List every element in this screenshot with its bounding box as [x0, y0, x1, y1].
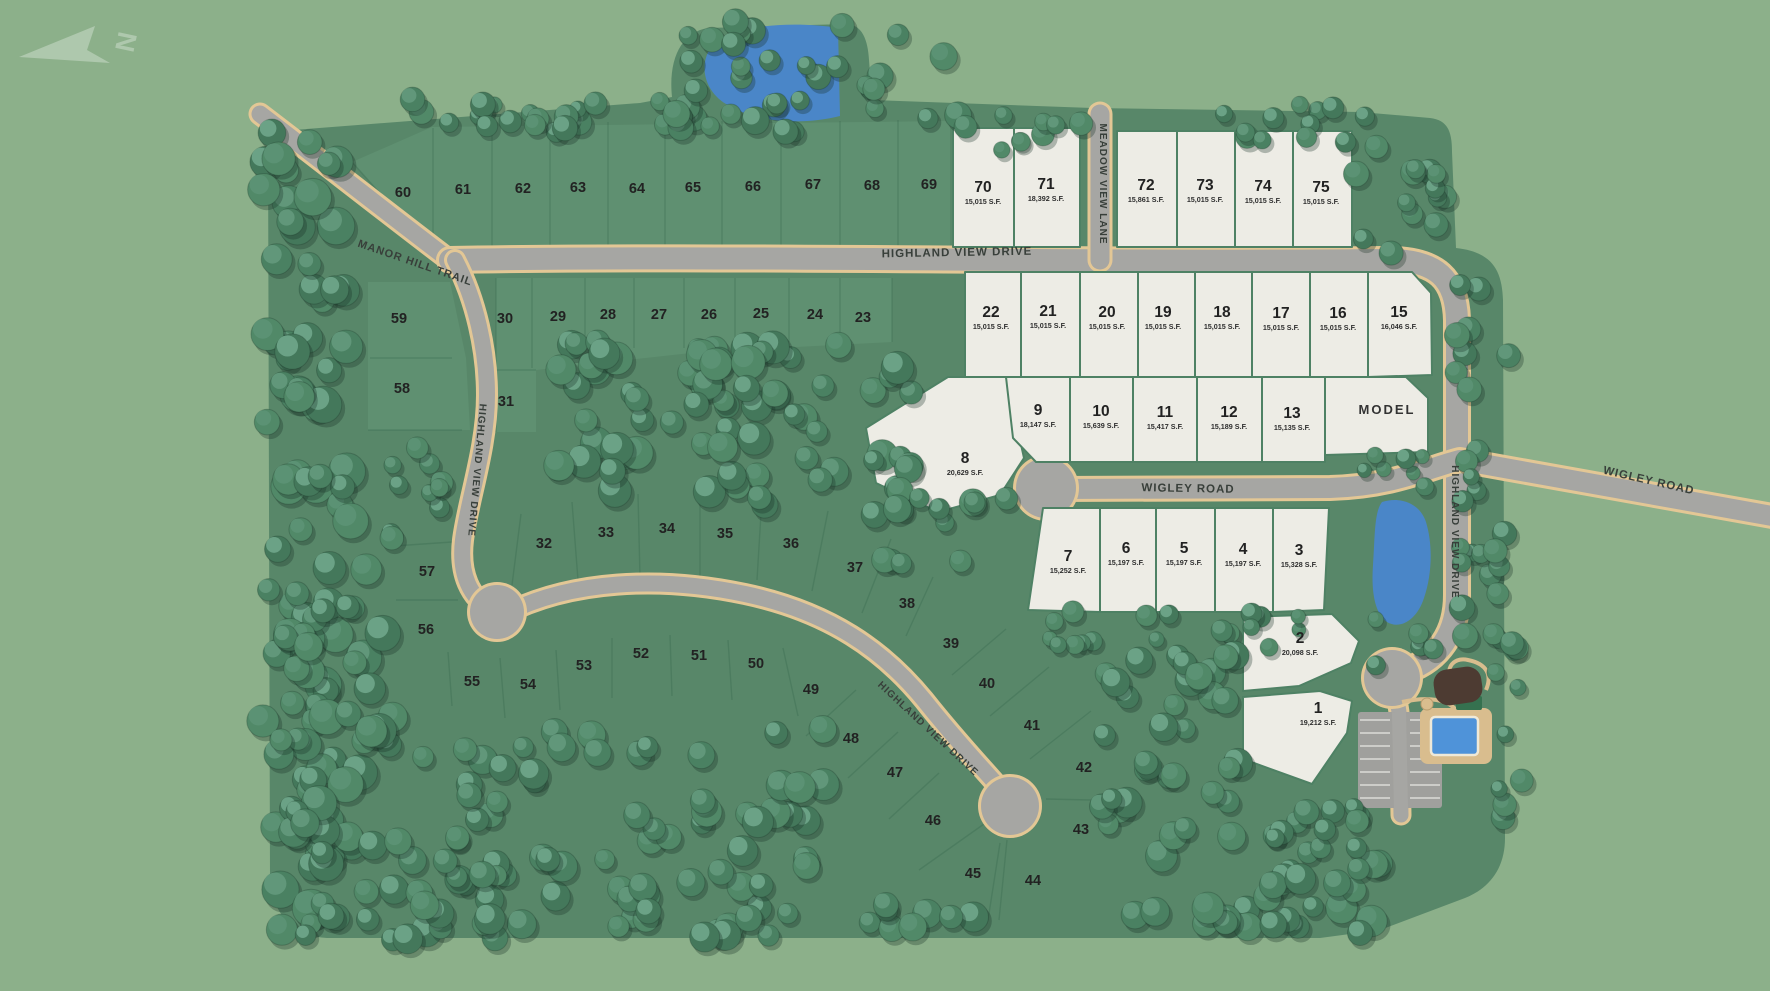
tree-highlight	[1345, 162, 1360, 177]
lot-63-label[interactable]: 63	[570, 180, 586, 196]
lot-10-sqft: 15,639 S.F.	[1083, 421, 1119, 430]
lot-33-label[interactable]: 33	[598, 525, 614, 541]
lot-23-label[interactable]: 23	[855, 310, 871, 326]
lot-75-sqft: 15,015 S.F.	[1303, 197, 1339, 206]
tree-highlight	[299, 253, 313, 267]
tree-highlight	[1254, 132, 1265, 143]
tree-highlight	[440, 114, 452, 126]
lot-74-sqft: 15,015 S.F.	[1245, 196, 1281, 205]
tree-highlight	[357, 717, 376, 736]
lot-59-number: 59	[391, 311, 407, 327]
lot-66-label[interactable]: 66	[745, 179, 761, 195]
tree-highlight	[435, 850, 449, 864]
tree-highlight	[471, 862, 487, 878]
tree-highlight	[331, 331, 351, 351]
tree-highlight	[360, 832, 377, 849]
tree-highlight	[729, 837, 747, 855]
lot-24-label[interactable]: 24	[807, 307, 823, 323]
tree-highlight	[543, 720, 559, 736]
lot-36-label[interactable]: 36	[783, 536, 799, 552]
tree-highlight	[1494, 522, 1509, 537]
tree-highlight	[739, 423, 759, 443]
lot-41-number: 41	[1024, 718, 1040, 734]
lot-22-sqft: 15,015 S.F.	[973, 322, 1009, 331]
lot-60-number: 60	[395, 185, 411, 201]
lot-73-sqft: 15,015 S.F.	[1187, 195, 1223, 204]
tree-highlight	[807, 422, 820, 435]
tree-highlight	[1213, 688, 1229, 704]
lot-74-number: 74	[1254, 178, 1272, 195]
lot-43-label[interactable]: 43	[1073, 822, 1089, 838]
tree-highlight	[296, 633, 313, 650]
tree-highlight	[735, 376, 751, 392]
tree-highlight	[1488, 664, 1499, 675]
tree-highlight	[447, 827, 461, 841]
tree-highlight	[1036, 114, 1047, 125]
lot-41-label[interactable]: 41	[1024, 718, 1040, 734]
tree-highlight	[546, 452, 564, 470]
lot-56-label[interactable]: 56	[418, 622, 434, 638]
lot-55-label[interactable]: 55	[464, 674, 480, 690]
lot-35-label[interactable]: 35	[717, 526, 733, 542]
lot-62-number: 62	[515, 181, 531, 197]
tree-highlight	[312, 600, 327, 615]
tree-highlight	[318, 359, 333, 374]
tree-highlight	[296, 180, 318, 202]
lot-46-number: 46	[925, 813, 941, 829]
lot-7-sqft: 15,252 S.F.	[1050, 566, 1086, 575]
lot-64-label[interactable]: 64	[629, 181, 645, 197]
lot-61-number: 61	[455, 182, 471, 198]
tree-highlight	[1292, 610, 1301, 619]
lot-67-number: 67	[805, 177, 821, 193]
tree-highlight	[744, 808, 763, 827]
tree-highlight	[996, 107, 1007, 118]
tree-highlight	[1366, 136, 1380, 150]
cul-de-sac[interactable]	[981, 777, 1039, 835]
tree-highlight	[1356, 108, 1368, 120]
lot-44-number: 44	[1025, 873, 1041, 889]
lot-49-number: 49	[803, 682, 819, 698]
lot-51-label[interactable]: 51	[691, 648, 707, 664]
tree-highlight	[1160, 606, 1172, 618]
tree-highlight	[685, 393, 700, 408]
tree-highlight	[455, 739, 469, 753]
lot-31-number: 31	[498, 394, 514, 410]
tree-highlight	[692, 790, 707, 805]
tree-highlight	[1512, 770, 1526, 784]
tree-highlight	[1323, 98, 1336, 111]
lot-8-sqft: 20,629 S.F.	[947, 468, 983, 477]
tree-highlight	[1103, 669, 1120, 686]
tree-highlight	[315, 553, 335, 573]
lot-51-number: 51	[691, 648, 707, 664]
tree-highlight	[965, 493, 978, 506]
lot-62-label[interactable]: 62	[515, 181, 531, 197]
tree-highlight	[609, 917, 622, 930]
tree-highlight	[626, 388, 641, 403]
lot-71-sqft: 18,392 S.F.	[1028, 194, 1064, 203]
lot-28-label[interactable]: 28	[600, 307, 616, 323]
tree-highlight	[596, 850, 608, 862]
tree-highlight	[1417, 478, 1428, 489]
lot-72-sqft: 15,861 S.F.	[1128, 195, 1164, 204]
tree-highlight	[1397, 450, 1409, 462]
tree-highlight	[1425, 640, 1437, 652]
lot-65-number: 65	[685, 180, 701, 196]
tree-highlight	[585, 740, 601, 756]
tree-highlight	[1428, 165, 1439, 176]
tree-highlight	[743, 108, 760, 125]
tree-highlight	[1123, 902, 1140, 919]
lot-69-label[interactable]: 69	[921, 177, 937, 193]
tree-highlight	[911, 489, 923, 501]
tree-highlight	[250, 175, 269, 194]
tree-highlight	[792, 92, 803, 103]
lot-27-number: 27	[651, 307, 667, 323]
tree-highlight	[1292, 97, 1302, 107]
tree-highlight	[1348, 839, 1360, 851]
lot-19-sqft: 15,015 S.F.	[1145, 322, 1181, 331]
tree-highlight	[1287, 865, 1306, 884]
tree-highlight	[431, 479, 442, 490]
lot-21-number: 21	[1039, 303, 1057, 320]
lot-53-label[interactable]: 53	[576, 658, 592, 674]
tree-highlight	[1458, 378, 1473, 393]
lot-4-number: 4	[1239, 541, 1248, 558]
tree-highlight	[932, 44, 949, 61]
tree-highlight	[1043, 632, 1052, 641]
tree-highlight	[1368, 448, 1378, 458]
tree-highlight	[901, 914, 918, 931]
lot-45-number: 45	[965, 866, 981, 882]
lot-48-number: 48	[843, 731, 859, 747]
tree-highlight	[278, 209, 294, 225]
lot-69-number: 69	[921, 177, 937, 193]
lot-36-number: 36	[783, 536, 799, 552]
lot-18-sqft: 15,015 S.F.	[1204, 322, 1240, 331]
tree-highlight	[1051, 637, 1061, 647]
tree-highlight	[1187, 664, 1203, 680]
tree-highlight	[1216, 106, 1226, 116]
tree-highlight	[1407, 160, 1418, 171]
lot-33-number: 33	[598, 525, 614, 541]
lot-68-number: 68	[864, 178, 880, 194]
lot-61-label[interactable]: 61	[455, 182, 471, 198]
lot-37-label[interactable]: 37	[847, 560, 863, 576]
tree-highlight	[896, 456, 913, 473]
tree-highlight	[1267, 829, 1278, 840]
tree-highlight	[264, 143, 284, 163]
tree-highlight	[768, 94, 781, 107]
lot-20-sqft: 15,015 S.F.	[1089, 322, 1125, 331]
tree-highlight	[693, 433, 707, 447]
tree-highlight	[285, 657, 300, 672]
lot-44-label[interactable]: 44	[1025, 873, 1041, 889]
tree-highlight	[566, 333, 580, 347]
tree-highlight	[709, 433, 727, 451]
tree-highlight	[381, 876, 399, 894]
tree-highlight	[268, 915, 287, 934]
tree-highlight	[353, 555, 372, 574]
tree-highlight	[277, 335, 298, 356]
tree-highlight	[271, 730, 284, 743]
tree-highlight	[385, 457, 395, 467]
tree-highlight	[813, 376, 826, 389]
tree-highlight	[296, 926, 308, 938]
lot-60-label[interactable]: 60	[395, 185, 411, 201]
tree-highlight	[994, 142, 1004, 152]
lot-47-label[interactable]: 47	[887, 765, 903, 781]
tree-highlight	[520, 760, 538, 778]
tree-highlight	[591, 339, 610, 358]
road-label-meadow-view-lane: MEADOW VIEW LANE	[1097, 124, 1108, 245]
tree-highlight	[737, 906, 753, 922]
tree-highlight	[1212, 621, 1225, 634]
tree-highlight	[1446, 324, 1461, 339]
lot-12-number: 12	[1220, 404, 1237, 421]
lot-58-label[interactable]: 58	[394, 381, 410, 397]
tree-highlight	[811, 717, 828, 734]
tree-highlight	[863, 503, 879, 519]
tree-highlight	[260, 120, 277, 137]
tree-highlight	[1457, 451, 1470, 464]
lot-29-label[interactable]: 29	[550, 309, 566, 325]
tree-highlight	[766, 722, 780, 736]
lot-48-label[interactable]: 48	[843, 731, 859, 747]
lot-68-label[interactable]: 68	[864, 178, 880, 194]
lot-1-sqft: 19,212 S.F.	[1300, 718, 1336, 727]
tree-highlight	[717, 418, 731, 432]
lot-63-number: 63	[570, 180, 586, 196]
tree-highlight	[865, 451, 877, 463]
lot-71-number: 71	[1037, 176, 1055, 193]
lot-59-label[interactable]: 59	[391, 311, 407, 327]
tree-highlight	[367, 617, 388, 638]
tree-highlight	[1349, 921, 1364, 936]
lot-29-number: 29	[550, 309, 566, 325]
lot-26-label[interactable]: 26	[701, 307, 717, 323]
tree-highlight	[1063, 602, 1076, 615]
lot-50-number: 50	[748, 656, 764, 672]
tree-highlight	[724, 10, 740, 26]
tree-highlight	[386, 829, 402, 845]
lot-16-sqft: 15,015 S.F.	[1320, 323, 1356, 332]
tree-highlight	[955, 116, 969, 130]
tree-highlight	[1304, 897, 1316, 909]
tree-highlight	[1297, 128, 1309, 140]
lot-12-sqft: 15,189 S.F.	[1211, 422, 1247, 431]
tree-highlight	[652, 93, 663, 104]
lot-25-label[interactable]: 25	[753, 306, 769, 322]
lot-30-label[interactable]: 30	[497, 311, 513, 327]
tree-highlight	[689, 743, 705, 759]
tree-highlight	[1369, 612, 1378, 621]
tree-highlight	[286, 383, 304, 401]
tree-highlight	[310, 465, 324, 479]
tree-highlight	[1136, 752, 1150, 766]
lot-57-label[interactable]: 57	[419, 564, 435, 580]
tree-highlight	[723, 33, 737, 47]
tree-highlight	[458, 784, 473, 799]
lot-46-label[interactable]: 46	[925, 813, 941, 829]
lot-42-number: 42	[1076, 760, 1092, 776]
lot-18-number: 18	[1213, 304, 1231, 321]
tree-highlight	[1502, 633, 1516, 647]
tree-highlight	[395, 925, 413, 943]
tree-highlight	[763, 381, 779, 397]
tree-highlight	[1315, 820, 1328, 833]
lot-26-number: 26	[701, 307, 717, 323]
model-home-label: MODEL	[1359, 402, 1416, 417]
lot-57-number: 57	[419, 564, 435, 580]
tree-highlight	[488, 792, 501, 805]
tree-highlight	[335, 505, 356, 526]
tree-highlight	[637, 899, 652, 914]
tree-highlight	[478, 116, 491, 129]
lot-16-number: 16	[1329, 305, 1347, 322]
tree-highlight	[695, 477, 714, 496]
road-label-wigley-road: WIGLEY ROAD	[1141, 482, 1234, 496]
tree-highlight	[1137, 606, 1150, 619]
lot-4-sqft: 15,197 S.F.	[1225, 559, 1261, 568]
lot-17-sqft: 15,015 S.F.	[1263, 323, 1299, 332]
tree-highlight	[356, 880, 371, 895]
tree-highlight	[795, 854, 811, 870]
lot-52-label[interactable]: 52	[633, 646, 649, 662]
tree-highlight	[1410, 624, 1422, 636]
tree-highlight	[749, 486, 763, 500]
tree-highlight	[1336, 132, 1348, 144]
tree-highlight	[760, 51, 773, 64]
lot-53-number: 53	[576, 658, 592, 674]
tree-highlight	[1325, 871, 1341, 887]
tree-highlight	[1261, 639, 1272, 650]
lot-27-label[interactable]: 27	[651, 307, 667, 323]
tree-highlight	[1492, 781, 1502, 791]
site-plan-svg: 119,212 S.F.220,098 S.F.315,328 S.F.415,…	[0, 0, 1770, 991]
tree-highlight	[602, 434, 622, 454]
tree-highlight	[337, 702, 352, 717]
tree-highlight	[301, 768, 317, 784]
tree-highlight	[526, 115, 539, 128]
tree-highlight	[827, 333, 843, 349]
tree-highlight	[1261, 912, 1277, 928]
tree-highlight	[1425, 214, 1440, 229]
lot-39-label[interactable]: 39	[943, 636, 959, 652]
lot-66-number: 66	[745, 179, 761, 195]
tree-highlight	[864, 79, 877, 92]
tree-highlight	[1150, 632, 1159, 641]
tree-highlight	[883, 353, 903, 373]
cul-de-sac[interactable]	[470, 585, 524, 639]
tree-highlight	[678, 870, 695, 887]
spa	[1421, 698, 1433, 710]
tree-highlight	[832, 14, 847, 29]
lot-17-number: 17	[1272, 305, 1289, 322]
tree-highlight	[299, 131, 314, 146]
lot-22-number: 22	[982, 304, 999, 321]
lot-37-number: 37	[847, 560, 863, 576]
lot-49-label[interactable]: 49	[803, 682, 819, 698]
tree-highlight	[888, 478, 904, 494]
lot-75-number: 75	[1312, 179, 1330, 196]
tree-highlight	[1464, 469, 1474, 479]
lot-6-sqft: 15,197 S.F.	[1108, 558, 1144, 567]
tree-highlight	[892, 554, 904, 566]
lot-38-label[interactable]: 38	[899, 596, 915, 612]
lot-42-label[interactable]: 42	[1076, 760, 1092, 776]
tree-highlight	[579, 722, 596, 739]
tree-highlight	[1498, 345, 1512, 359]
lot-31-label[interactable]: 31	[498, 394, 514, 410]
tree-highlight	[290, 519, 304, 533]
tree-highlight	[1176, 818, 1189, 831]
tree-highlight	[337, 596, 351, 610]
tree-highlight	[885, 496, 902, 513]
tree-highlight	[256, 410, 271, 425]
lot-9-number: 9	[1034, 402, 1043, 419]
lot-6-number: 6	[1122, 540, 1131, 557]
tree-highlight	[1399, 194, 1410, 205]
lot-38-number: 38	[899, 596, 915, 612]
tree-highlight	[1485, 540, 1499, 554]
lot-24-number: 24	[807, 307, 823, 323]
lot-34-label[interactable]: 34	[659, 521, 675, 537]
tree-highlight	[1244, 620, 1254, 630]
tree-highlight	[287, 583, 301, 597]
tree-highlight	[1323, 801, 1337, 815]
lot-3-sqft: 15,328 S.F.	[1281, 560, 1317, 569]
tree-highlight	[537, 848, 552, 863]
tree-highlight	[1165, 695, 1178, 708]
tree-highlight	[1203, 782, 1217, 796]
tree-highlight	[1511, 680, 1521, 690]
tree-highlight	[786, 773, 805, 792]
tree-highlight	[862, 379, 877, 394]
tree-highlight	[356, 674, 375, 693]
lot-67-label[interactable]: 67	[805, 177, 821, 193]
tree-highlight	[809, 469, 824, 484]
tree-highlight	[662, 412, 676, 426]
lot-40-label[interactable]: 40	[979, 676, 995, 692]
tree-highlight	[779, 904, 791, 916]
lot-70-sqft: 15,015 S.F.	[965, 197, 1001, 206]
tree-highlight	[391, 477, 402, 488]
lot-65-label[interactable]: 65	[685, 180, 701, 196]
road-label-highland-view-drive: HIGHLAND VIEW DRIVE	[1449, 465, 1460, 598]
lot-54-label[interactable]: 54	[520, 677, 536, 693]
tree-highlight	[275, 465, 294, 484]
lot-28-number: 28	[600, 307, 616, 323]
lot-50-label[interactable]: 50	[748, 656, 764, 672]
lot-45-label[interactable]: 45	[965, 866, 981, 882]
tree-highlight	[576, 410, 590, 424]
tree-highlight	[828, 56, 841, 69]
swimming-pool[interactable]	[1431, 717, 1478, 755]
tree-highlight	[549, 734, 566, 751]
lot-54-number: 54	[520, 677, 536, 693]
tree-highlight	[1473, 545, 1484, 556]
tree-highlight	[601, 459, 617, 475]
tree-highlight	[1358, 464, 1367, 473]
lot-30-number: 30	[497, 311, 513, 327]
lot-32-label[interactable]: 32	[536, 536, 552, 552]
tree-highlight	[889, 25, 902, 38]
tree-highlight	[709, 860, 724, 875]
lot-70-number: 70	[974, 179, 991, 196]
tree-highlight	[691, 923, 709, 941]
